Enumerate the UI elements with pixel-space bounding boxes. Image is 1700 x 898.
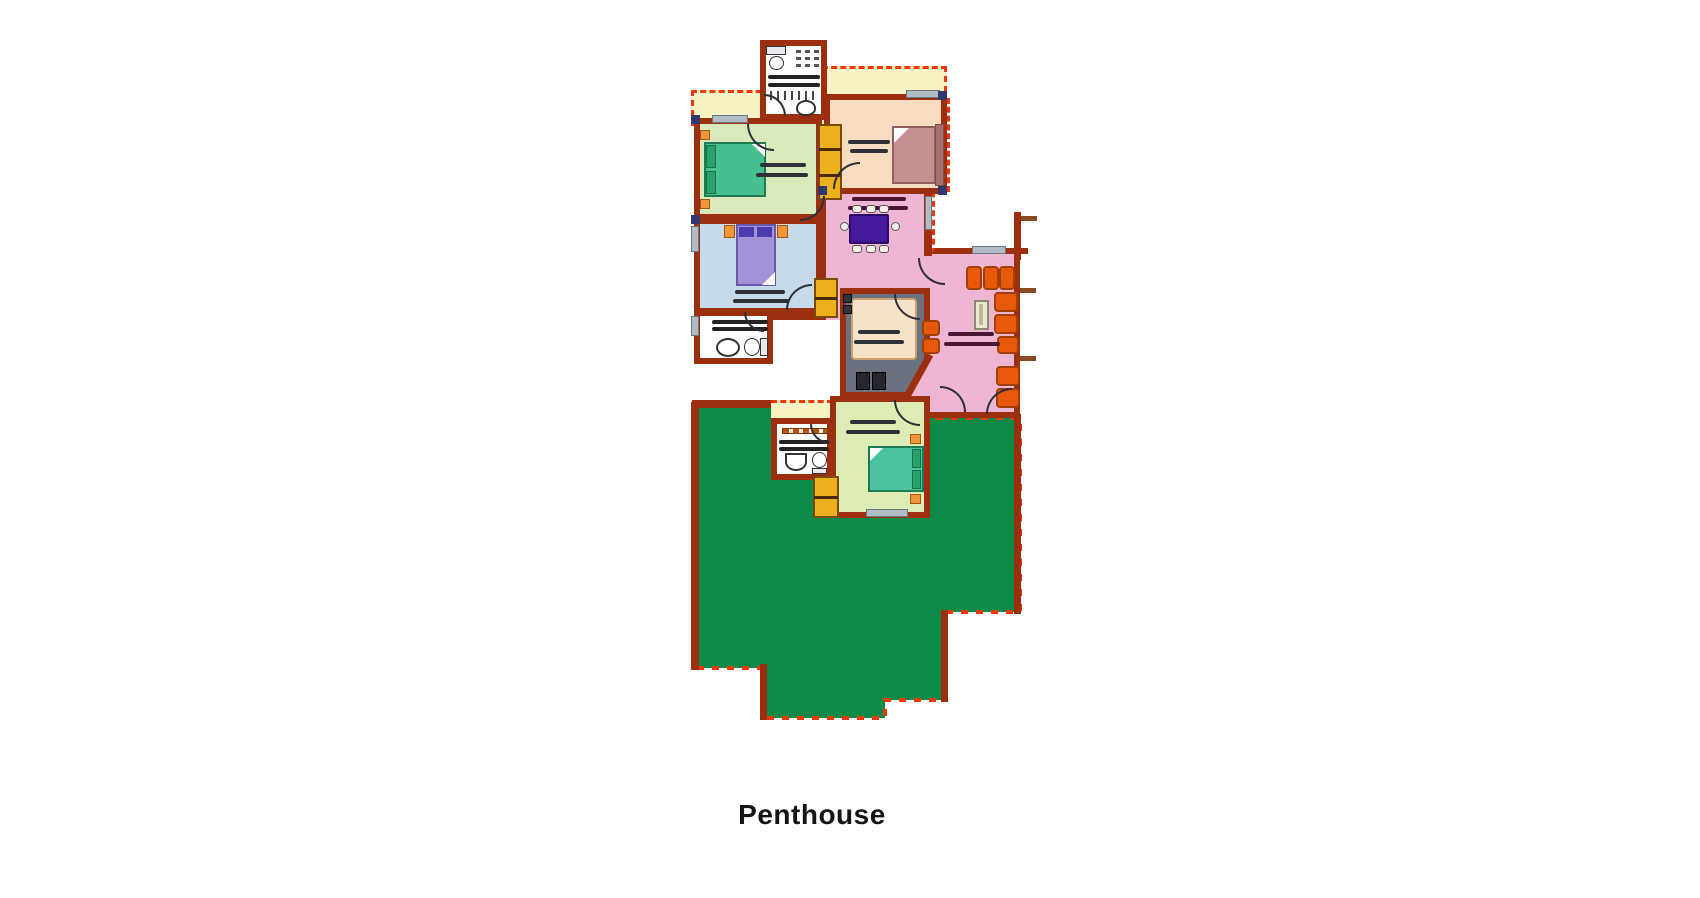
corner-accent — [938, 186, 947, 195]
sofa-cushion — [997, 336, 1019, 354]
shelf-dashes — [796, 57, 822, 60]
corner-accent — [818, 186, 827, 195]
rug-line — [850, 420, 896, 424]
rug-line — [854, 340, 904, 344]
toilet-bowl — [769, 56, 784, 70]
kitchen-appliance — [843, 294, 852, 303]
pillow — [706, 171, 716, 194]
terrace-wall-right-upper — [1014, 414, 1021, 614]
shelf-line — [779, 447, 829, 451]
rug-line — [733, 299, 789, 303]
toilet-tank — [812, 468, 827, 474]
railing-tick — [1021, 216, 1037, 221]
rug-line — [760, 163, 806, 167]
chair — [852, 205, 862, 213]
railing-tick — [1020, 288, 1036, 293]
sofa-cushion — [996, 366, 1020, 386]
plan-title: Penthouse — [702, 799, 922, 831]
loveseat-cushion — [922, 320, 940, 336]
chair — [891, 222, 900, 231]
window-bedroom2 — [866, 509, 908, 517]
pillow — [706, 145, 716, 168]
railing-post — [1014, 212, 1021, 260]
toilet-bowl — [744, 338, 760, 356]
balcony-dash-right — [947, 98, 951, 192]
stove-burner — [856, 372, 870, 390]
shelf-dashes — [796, 50, 822, 53]
terrace-wall-step — [760, 664, 767, 720]
nightstand — [700, 199, 710, 209]
window-blue-bedroom — [691, 226, 699, 252]
nightstand — [777, 225, 788, 238]
corner-accent — [691, 215, 700, 224]
rug-line — [848, 140, 890, 144]
terrace-wall-left — [691, 402, 699, 670]
rug-line — [850, 149, 888, 153]
pillow — [912, 449, 921, 468]
rug-line — [948, 332, 994, 336]
sofa-cushion — [994, 314, 1018, 334]
toilet-bowl — [812, 452, 827, 468]
chair — [866, 205, 876, 213]
dining-right-window — [925, 196, 932, 230]
bed-mauve-headboard — [935, 124, 944, 186]
pillow-purple — [739, 227, 754, 237]
sofa-cushion — [966, 266, 982, 290]
wardrobe-bottom-divider — [814, 496, 838, 499]
floor-lamp-inner — [979, 304, 983, 325]
terrace-wall-right-lower — [941, 610, 948, 702]
chair — [840, 222, 849, 231]
chair — [879, 205, 889, 213]
dining-table — [849, 214, 889, 244]
rug-line — [944, 342, 1000, 346]
terrace-wall-top-left — [692, 400, 776, 408]
window-living-top — [972, 246, 1006, 254]
sink — [785, 453, 807, 471]
sofa-cushion — [983, 266, 999, 290]
nightstand — [910, 434, 921, 444]
sink — [796, 100, 816, 116]
corner-accent — [938, 91, 947, 100]
rug-line — [852, 197, 906, 201]
pillow-purple — [757, 227, 772, 237]
wardrobe-mid-divider — [815, 297, 837, 300]
toilet-tank — [760, 338, 768, 356]
toilet-tank — [766, 46, 786, 55]
window-green-bedroom — [712, 115, 748, 123]
rug-line — [756, 173, 808, 177]
chair — [866, 245, 876, 253]
window-peach-bedroom — [906, 90, 940, 98]
nightstand — [700, 130, 710, 140]
shelf-line — [768, 75, 820, 79]
rug-line — [846, 430, 900, 434]
rug-line — [858, 330, 900, 334]
chair — [852, 245, 862, 253]
corner-accent — [691, 115, 700, 124]
kitchen-appliance — [843, 305, 852, 314]
stove-burner — [872, 372, 886, 390]
sink — [716, 338, 740, 357]
nightstand — [910, 494, 921, 504]
railing-tick — [1020, 356, 1036, 361]
sofa-cushion — [994, 292, 1018, 312]
window-bathroom-left — [691, 316, 699, 336]
wardrobe-top-divider1 — [819, 148, 841, 151]
pillow — [912, 470, 921, 489]
chair — [879, 245, 889, 253]
sofa-cushion — [999, 266, 1015, 290]
shelf-line — [768, 83, 820, 87]
shelf-dashes — [796, 64, 822, 67]
loveseat-cushion — [922, 338, 940, 354]
nightstand — [724, 225, 735, 238]
rug-line — [735, 290, 785, 294]
